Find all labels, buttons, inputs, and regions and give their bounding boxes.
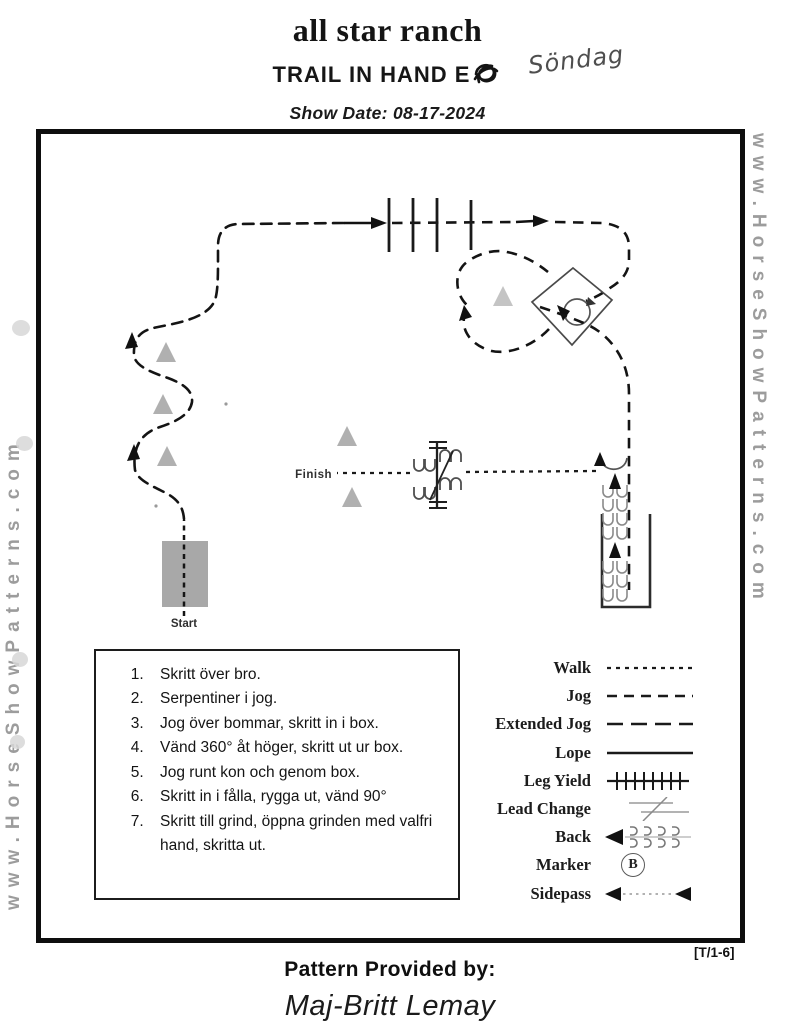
instructions-list: Skritt över bro. Serpentiner i jog. Jog …: [96, 663, 458, 859]
marker-symbol: B: [601, 853, 697, 877]
lope-line-symbol: [601, 741, 697, 765]
instruction-item: Skritt till grind, öppna grinden med val…: [148, 810, 452, 859]
scan-speck: [224, 402, 227, 405]
legend-label: Lead Change: [455, 799, 601, 819]
legend: Walk Jog Extended Jog Lope Leg Yield Lea…: [455, 654, 697, 908]
scan-artifact: [10, 735, 25, 749]
direction-arrow: [533, 215, 549, 227]
marker-circle: B: [621, 853, 645, 877]
pattern-subtitle: TRAIL IN HAND E: [273, 62, 471, 87]
cone: [156, 342, 176, 362]
provider-name: Maj-Britt Lemay: [0, 990, 780, 1023]
legend-row-lope: Lope: [455, 739, 697, 767]
trot-poles-obstacle: [344, 198, 629, 301]
scan-artifact: [12, 320, 30, 336]
legend-row-lead-change: Lead Change: [455, 795, 697, 823]
instruction-item: Jog över bommar, skritt in i box.: [148, 712, 452, 736]
cone: [493, 286, 513, 306]
scan-artifact: [12, 652, 28, 667]
ranch-title: all star ranch: [0, 12, 775, 49]
legend-row-marker: Marker B: [455, 851, 697, 879]
trail-pattern-sheet: all star ranch TRAIL IN HAND E Söndag Sh…: [0, 0, 800, 1033]
back-symbol: [601, 825, 697, 849]
instruction-item: Skritt över bro.: [148, 663, 452, 687]
pen-obstacle: [594, 452, 650, 607]
scan-artifact: [16, 436, 33, 451]
instruction-item: Jog runt kon och genom box.: [148, 761, 452, 785]
start-label: Start: [171, 618, 197, 630]
finish-walk-line: Finish: [295, 469, 596, 481]
direction-arrow: [125, 332, 138, 349]
legend-label: Leg Yield: [455, 771, 601, 791]
legend-row-extended-jog: Extended Jog: [455, 710, 697, 738]
gate-obstacle: [414, 441, 461, 509]
legend-label: Walk: [455, 658, 601, 678]
pattern-subtitle-row: TRAIL IN HAND E: [0, 60, 775, 92]
show-date: Show Date: 08-17-2024: [0, 103, 775, 124]
legend-row-jog: Jog: [455, 682, 697, 710]
legend-row-leg-yield: Leg Yield: [455, 767, 697, 795]
extended-jog-line-symbol: [601, 712, 697, 736]
legend-row-back: Back: [455, 823, 697, 851]
watermark-left: www.HorseShowPatterns.com: [3, 138, 25, 910]
jog-line-symbol: [601, 684, 697, 708]
cone: [157, 446, 177, 466]
cone: [342, 487, 362, 507]
leg-yield-symbol: [601, 769, 697, 793]
marker-letter: B: [628, 857, 637, 873]
cone: [153, 394, 173, 414]
instruction-item: Serpentiner i jog.: [148, 687, 452, 711]
legend-row-walk: Walk: [455, 654, 697, 682]
lead-change-symbol: [601, 797, 697, 821]
bridge-obstacle: Start: [162, 520, 208, 630]
legend-label: Sidepass: [455, 884, 601, 904]
scribble-icon: [472, 60, 502, 92]
instruction-item: Skritt in i fålla, rygga ut, vänd 90°: [148, 785, 452, 809]
legend-label: Jog: [455, 686, 601, 706]
scan-speck: [154, 504, 157, 507]
cones: [153, 286, 513, 507]
legend-label: Extended Jog: [455, 714, 601, 734]
legend-label: Marker: [455, 855, 601, 875]
watermark-right: www.HorseShowPatterns.com: [747, 133, 769, 913]
sidepass-symbol: [601, 882, 697, 906]
direction-arrow: [609, 542, 621, 558]
direction-arrow: [609, 473, 621, 489]
finish-label: Finish: [295, 469, 332, 481]
cone: [337, 426, 357, 446]
legend-label: Lope: [455, 743, 601, 763]
walk-line-symbol: [601, 656, 697, 680]
legend-row-sidepass: Sidepass: [455, 880, 697, 908]
provided-by-label: Pattern Provided by:: [0, 958, 780, 982]
instruction-item: Vänd 360° åt höger, skritt ut ur box.: [148, 736, 452, 760]
direction-arrow: [594, 452, 606, 466]
direction-arrow: [371, 217, 387, 229]
legend-label: Back: [455, 827, 601, 847]
direction-arrow: [459, 305, 472, 321]
instructions-box: Skritt över bro. Serpentiner i jog. Jog …: [94, 649, 460, 900]
